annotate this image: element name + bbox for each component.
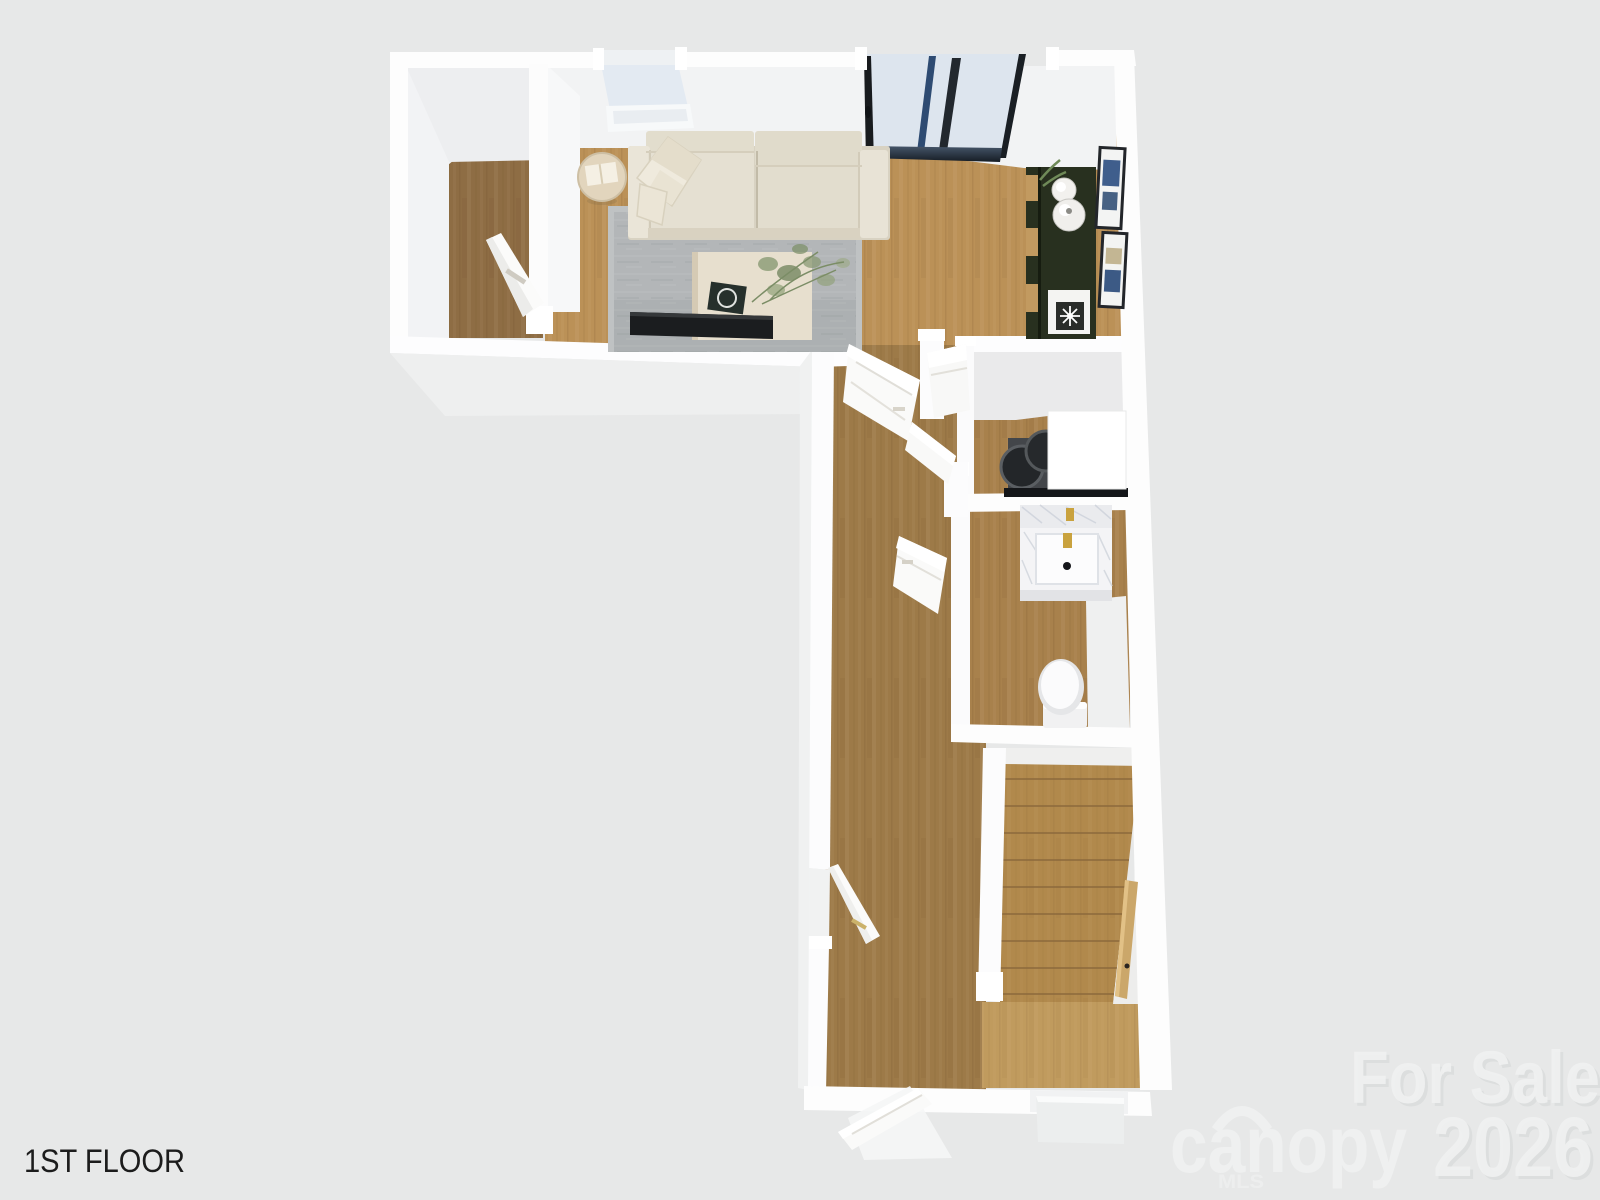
svg-text:MLS: MLS — [1218, 1172, 1264, 1193]
svg-text:1ST FLOOR: 1ST FLOOR — [24, 1143, 185, 1179]
svg-text:2026: 2026 — [1433, 1100, 1593, 1194]
svg-text:canopy: canopy — [1170, 1100, 1407, 1189]
